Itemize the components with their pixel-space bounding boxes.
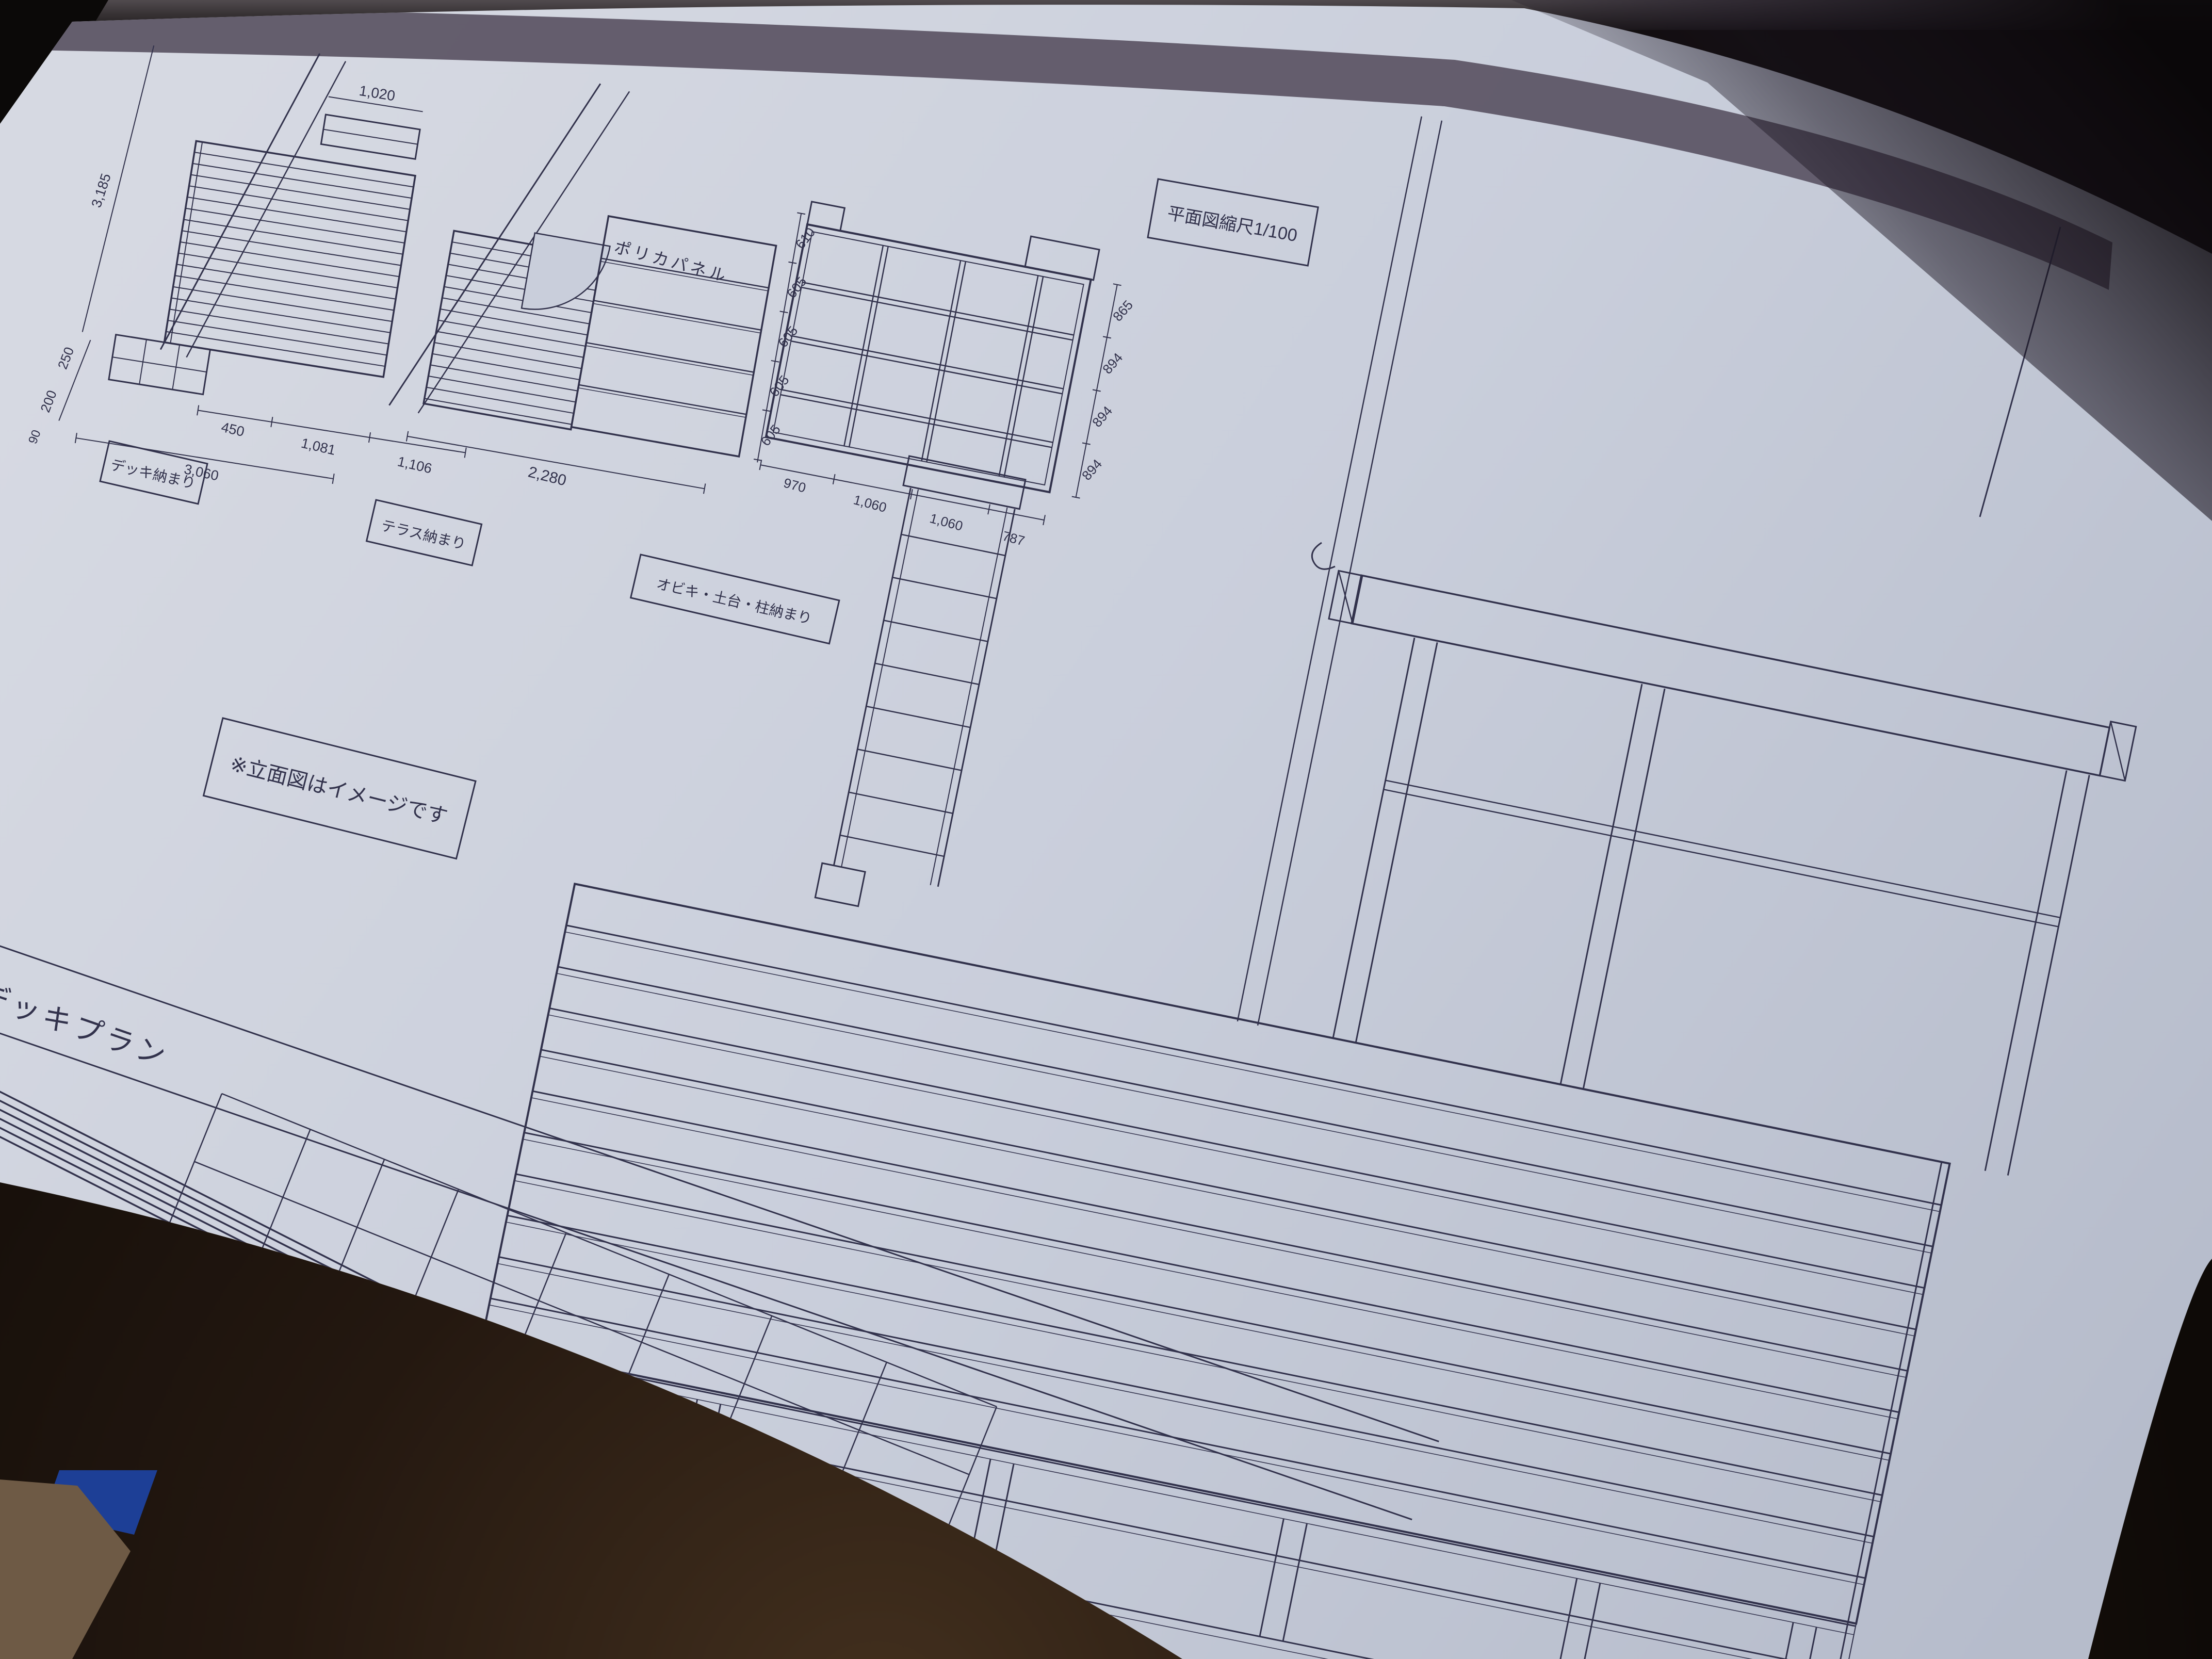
photo-of-terrace-deck-plan: 1,020 3,185 250 200 90 450 1,081 1,106 3…: [0, 0, 2212, 1659]
scene-canvas: 1,020 3,185 250 200 90 450 1,081 1,106 3…: [0, 0, 2212, 1659]
